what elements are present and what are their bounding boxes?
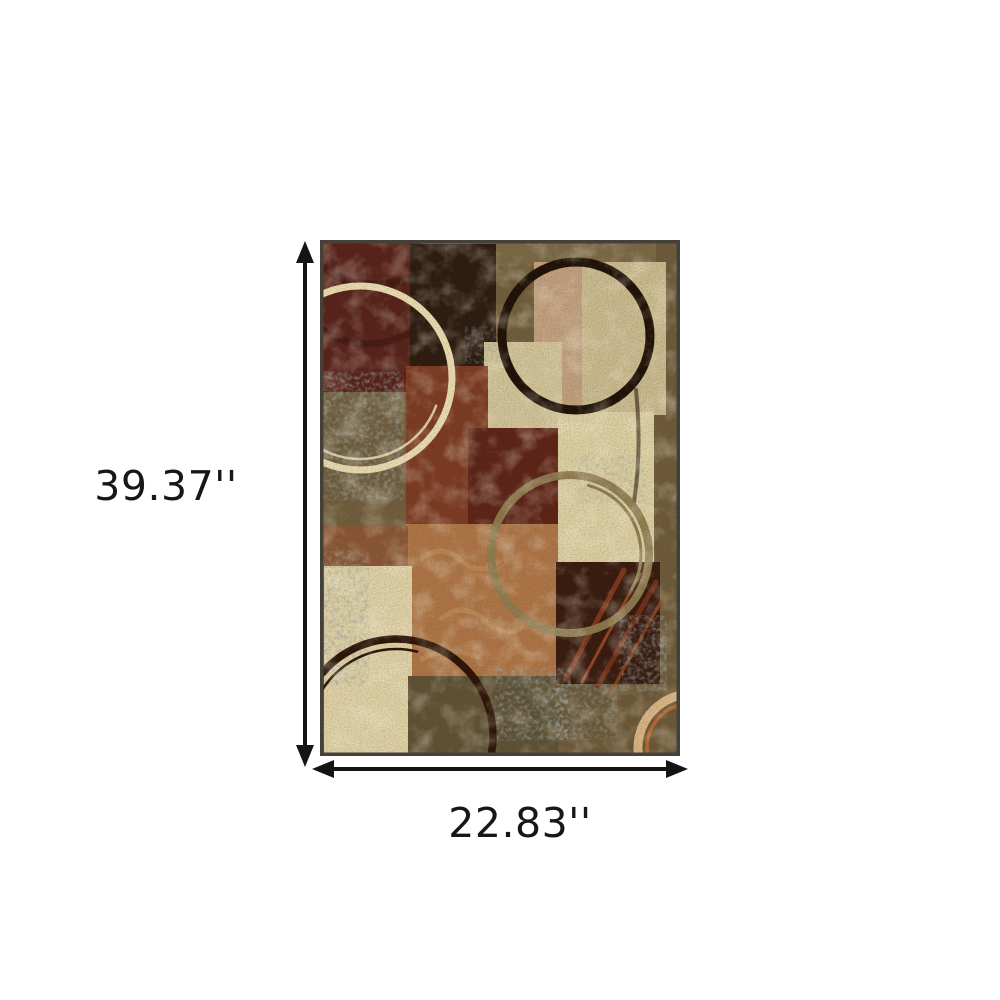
arrowhead-right-icon bbox=[666, 760, 688, 778]
arrowhead-up-icon bbox=[296, 241, 314, 263]
width-dimension-label: 22.83'' bbox=[408, 797, 632, 849]
rug-image bbox=[320, 240, 680, 756]
height-arrow bbox=[296, 241, 314, 767]
height-dimension-label: 39.37'' bbox=[54, 460, 278, 512]
rug-artwork bbox=[320, 240, 680, 756]
width-arrow bbox=[312, 760, 688, 778]
product-dimension-diagram: 39.37'' 22.83'' bbox=[0, 0, 1000, 1000]
grain-texture-overlay bbox=[320, 240, 680, 756]
arrowhead-down-icon bbox=[296, 745, 314, 767]
arrowhead-left-icon bbox=[312, 760, 334, 778]
